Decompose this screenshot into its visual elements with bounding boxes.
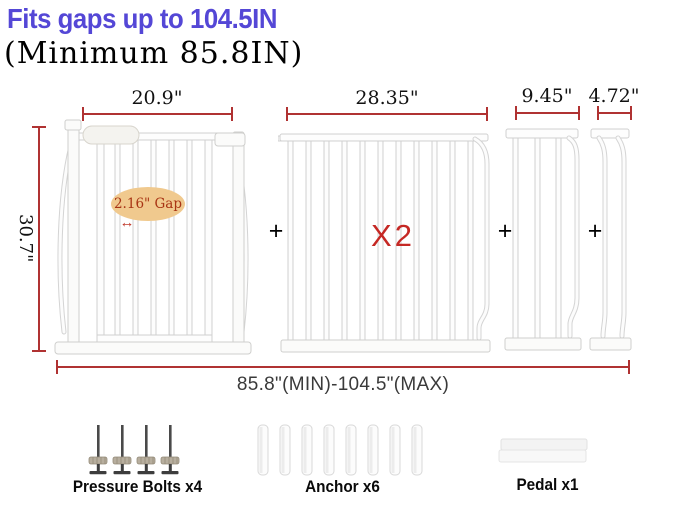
anchor-icon <box>323 424 336 476</box>
pressure-bolt-icon <box>158 424 182 478</box>
page-title: Fits gaps up to 104.5IN <box>7 3 277 35</box>
pedal-label: Pedal x1 <box>500 475 595 495</box>
gate-illustration <box>48 116 258 361</box>
anchor-icon <box>411 424 424 476</box>
extension-small-illustration <box>587 126 635 356</box>
product-dimension-diagram: Fits gaps up to 104.5IN (Minimum 85.8IN)… <box>0 0 679 509</box>
extension-large-width-label: 28.35" <box>337 87 437 109</box>
extension-large-dimension-line <box>286 107 488 121</box>
total-width-dimension-line <box>56 360 630 374</box>
pressure-bolt-icon <box>134 424 158 478</box>
height-label: 30.7" <box>16 214 36 258</box>
anchor-icon <box>389 424 402 476</box>
anchor-icon <box>301 424 314 476</box>
pressure-bolts-label: Pressure Bolts x4 <box>68 477 208 497</box>
pedal-icon <box>498 438 590 466</box>
anchor-icon <box>257 424 270 476</box>
extension-small-width-label: 4.72" <box>564 85 664 107</box>
gate-width-label: 20.9" <box>107 87 207 109</box>
total-width-label: 85.8"(MIN)-104.5"(MAX) <box>143 374 543 396</box>
pressure-bolts-icons <box>86 424 182 478</box>
extension-small-dimension-line <box>597 106 632 120</box>
anchor-icon <box>367 424 380 476</box>
quantity-multiplier: X2 <box>360 218 426 254</box>
page-subtitle: (Minimum 85.8IN) <box>4 36 303 71</box>
extension-medium-dimension-line <box>515 106 580 120</box>
anchor-icon <box>279 424 292 476</box>
anchor-icon <box>345 424 358 476</box>
anchor-label: Anchor x6 <box>286 477 399 497</box>
extension-medium-illustration <box>503 126 587 356</box>
anchor-icons <box>257 424 424 476</box>
gap-arrow-icon: ↔ <box>114 214 140 231</box>
pressure-bolt-icon <box>110 424 134 478</box>
pressure-bolt-icon <box>86 424 110 478</box>
